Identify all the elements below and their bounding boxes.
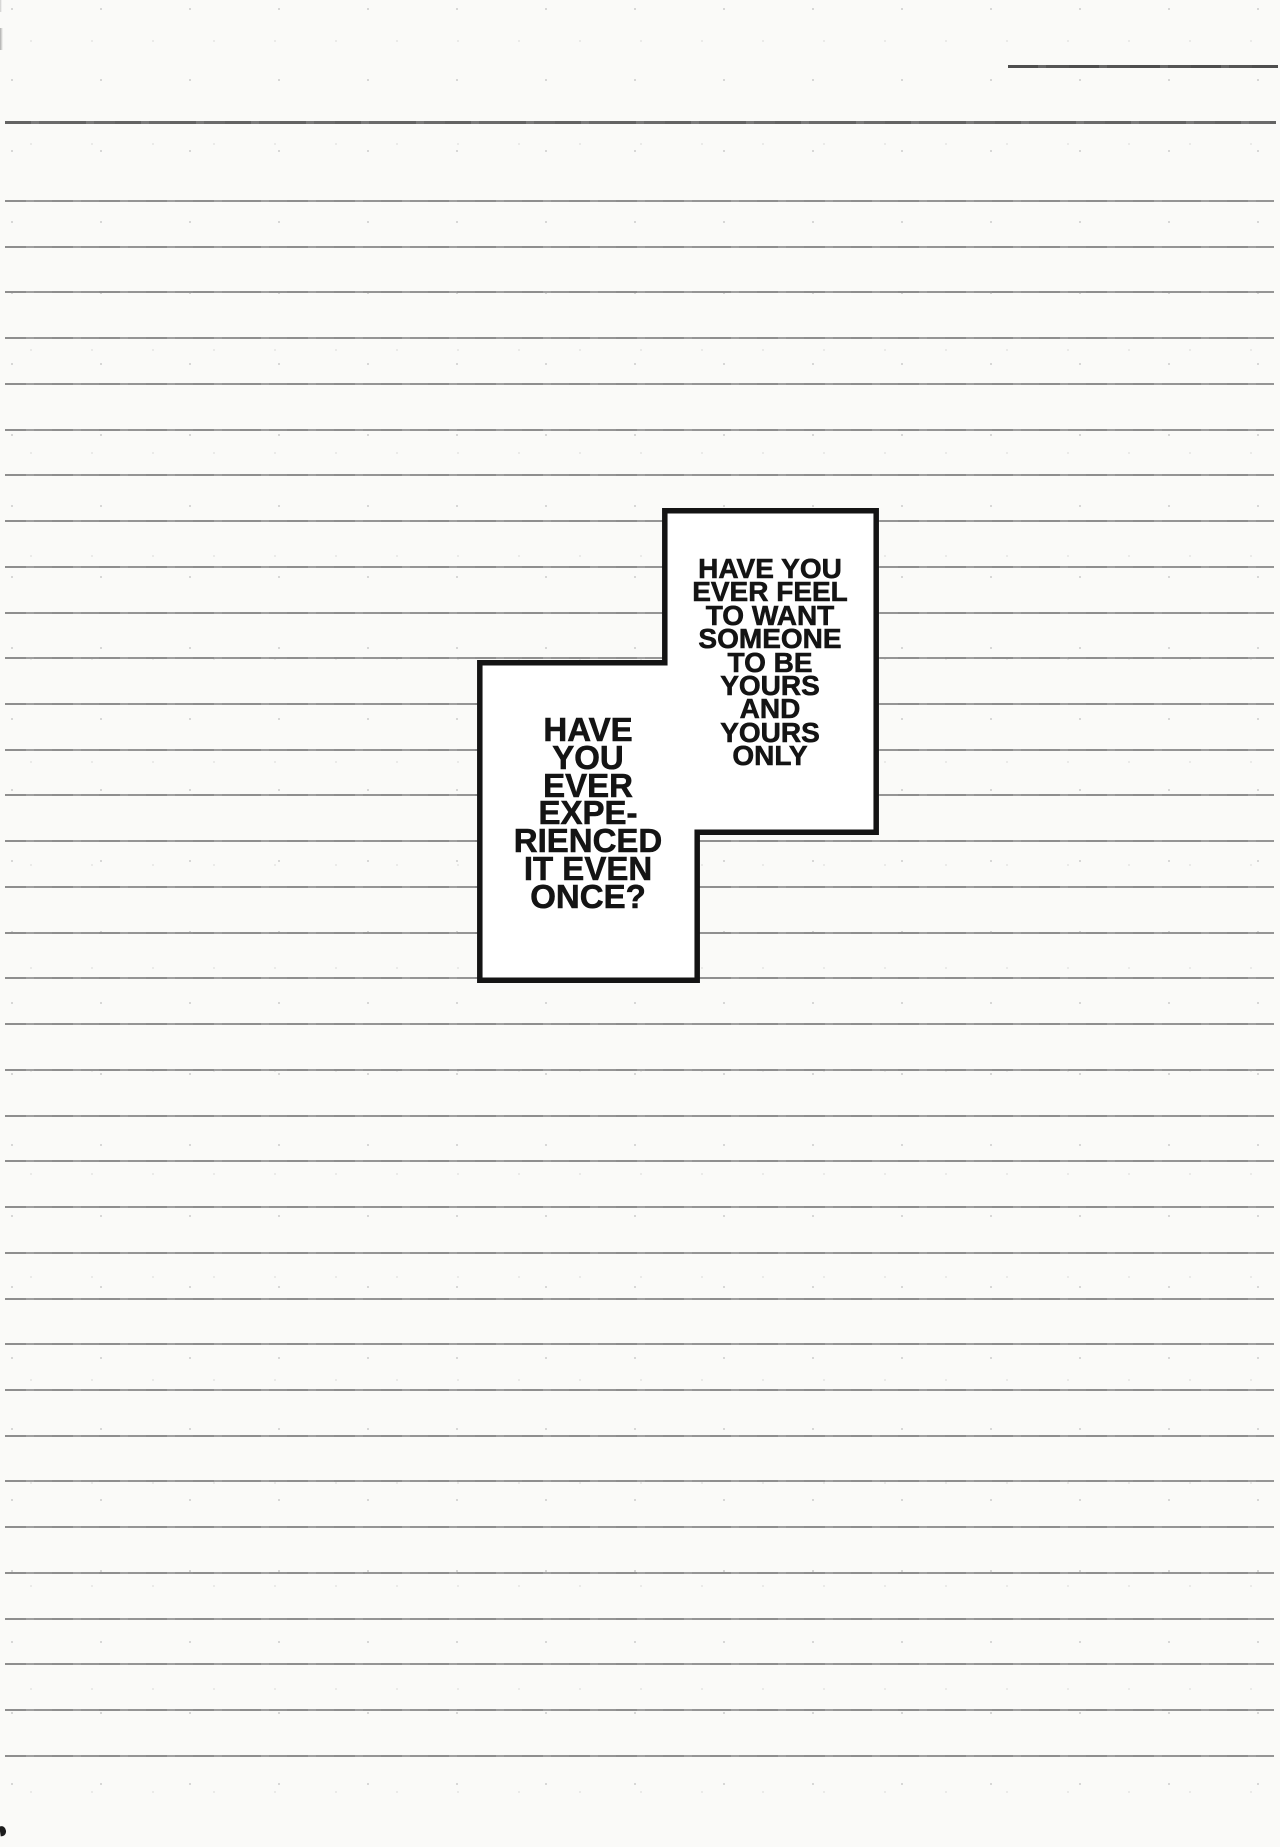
left-bubble-text: HAVE YOU EVER EXPE- RIENCED IT EVEN ONCE…: [478, 716, 698, 911]
left-edge-smudge-top: [0, 0, 2, 12]
left-edge-smudge: [0, 28, 3, 50]
notebook-page: HAVE YOU EVER FEEL TO WANT SOMEONE TO BE…: [0, 0, 1280, 1847]
speech-bubble-shape: [0, 0, 1280, 1847]
